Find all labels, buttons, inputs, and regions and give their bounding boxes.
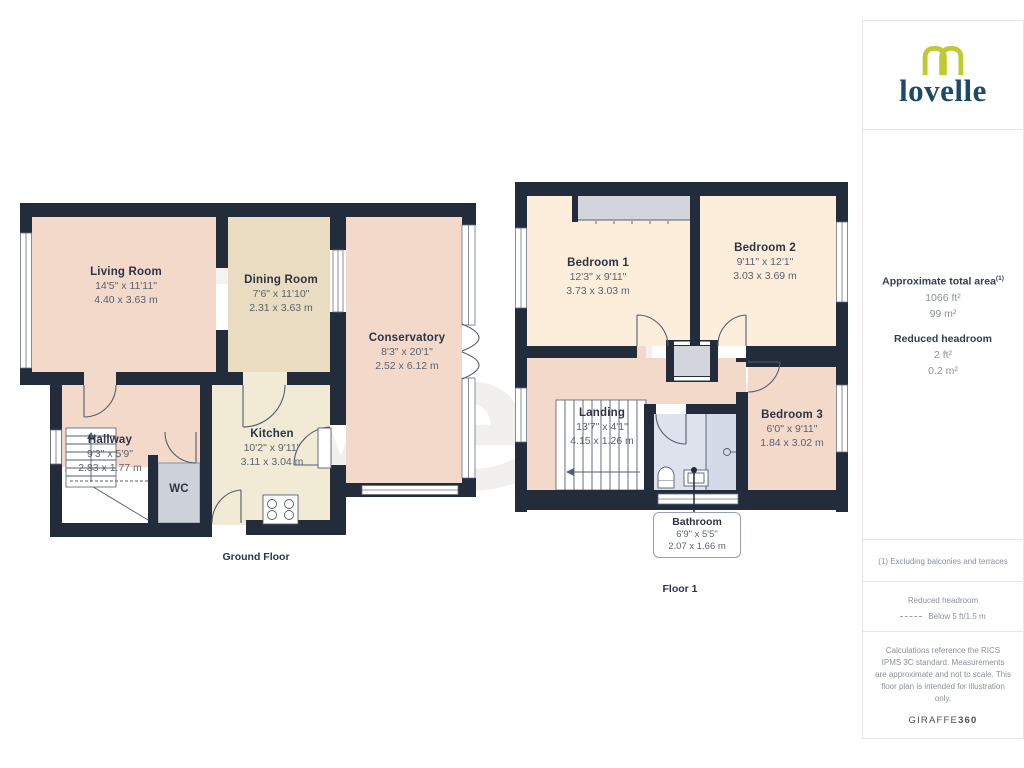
lovelle-logo-text: lovelle bbox=[899, 76, 987, 106]
ground-floor-caption: Ground Floor bbox=[176, 551, 336, 563]
sink-icon bbox=[684, 470, 708, 486]
dashed-line-swatch bbox=[900, 616, 922, 617]
legend-title: Reduced headroom bbox=[863, 595, 1023, 606]
disclaimer-text: Calculations reference the RICS IPMS 3C … bbox=[875, 645, 1011, 705]
toilet-icon bbox=[658, 467, 674, 488]
reduced-headroom-metric: 0.2 m² bbox=[863, 363, 1023, 379]
total-area-imperial: 1066 ft² bbox=[863, 290, 1023, 306]
legend-section: Reduced headroom Below 5 ft/1.5 m bbox=[863, 581, 1023, 631]
footnote-section: (1) Excluding balconies and terraces bbox=[863, 539, 1023, 582]
footnote-text: (1) Excluding balconies and terraces bbox=[878, 557, 1007, 566]
info-sidebar: lovelle Approximate total area(1) 1066 f… bbox=[862, 20, 1024, 739]
legend-label: Below 5 ft/1.5 m bbox=[928, 612, 985, 621]
total-area-metric: 99 m² bbox=[863, 306, 1023, 322]
wardrobe bbox=[572, 196, 690, 224]
disclaimer-section: Calculations reference the RICS IPMS 3C … bbox=[863, 631, 1023, 738]
first-floor-plan bbox=[515, 182, 848, 512]
lovelle-logo: lovelle bbox=[863, 21, 1023, 130]
reduced-headroom-title: Reduced headroom bbox=[863, 332, 1023, 347]
floorplan-page: lovelle bbox=[0, 0, 1024, 768]
reduced-headroom-imperial: 2 ft² bbox=[863, 347, 1023, 363]
room-label-bathroom-callout: Bathroom 6'9" x 5'5" 2.07 x 1.66 m bbox=[653, 512, 741, 558]
cupboard bbox=[666, 340, 718, 382]
footnote-marker: (1) bbox=[996, 275, 1004, 282]
lovelle-house-icon bbox=[922, 44, 964, 76]
total-area-title: Approximate total area(1) bbox=[863, 271, 1023, 290]
first-floor-caption: Floor 1 bbox=[610, 583, 750, 595]
kitchen-counter bbox=[318, 428, 331, 468]
hob-icon bbox=[263, 495, 298, 524]
giraffe360-brand: GIRAFFE360 bbox=[863, 715, 1023, 726]
area-summary: Approximate total area(1) 1066 ft² 99 m²… bbox=[863, 271, 1023, 379]
ground-floor-plan bbox=[20, 203, 479, 537]
